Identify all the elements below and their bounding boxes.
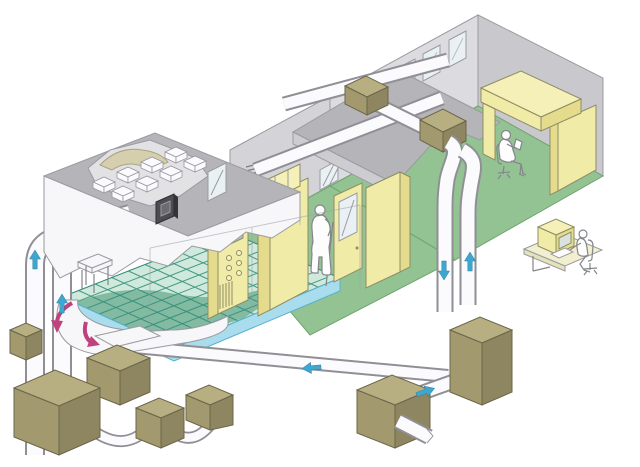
side-cabinet	[366, 172, 410, 288]
cleanroom-hvac-diagram	[0, 0, 640, 467]
outdoor-unit-large	[14, 370, 100, 455]
door-with-window	[334, 183, 362, 282]
ahu-return-unit	[450, 317, 512, 405]
outdoor-unit-small-left	[10, 323, 42, 360]
desktop-computer-icon	[538, 219, 574, 254]
computer-workstation	[524, 219, 602, 275]
ahu-assembly	[357, 317, 512, 448]
floor-level-duct	[102, 344, 448, 376]
outdoor-unit-a	[136, 398, 184, 448]
outdoor-unit-b	[186, 385, 233, 430]
